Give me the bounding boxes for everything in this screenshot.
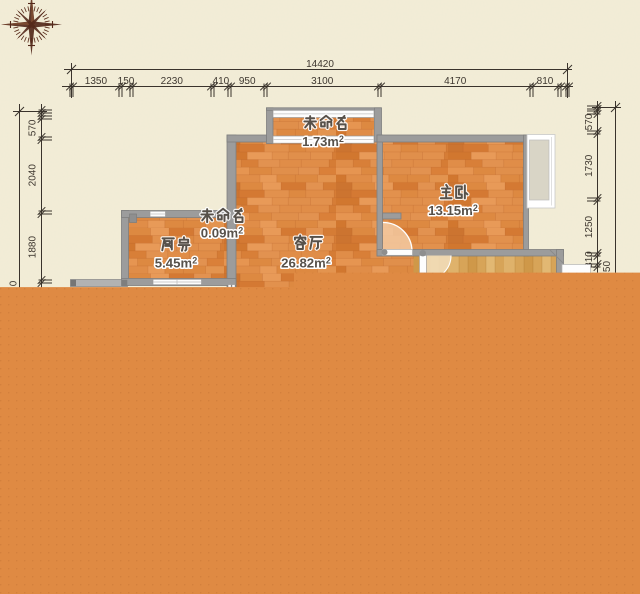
- svg-text:13.15m2: 13.15m2: [428, 203, 478, 218]
- svg-text:150: 150: [118, 76, 135, 87]
- svg-text:5.45m2: 5.45m2: [155, 255, 197, 270]
- svg-text:4170: 4170: [444, 76, 467, 87]
- svg-text:570: 570: [584, 113, 595, 130]
- svg-text:810: 810: [537, 76, 554, 87]
- svg-text:1880: 1880: [28, 236, 39, 259]
- svg-text:50: 50: [602, 261, 613, 273]
- svg-text:1730: 1730: [584, 154, 595, 177]
- svg-text:26.82m2: 26.82m2: [281, 255, 331, 270]
- svg-text:950: 950: [239, 76, 256, 87]
- svg-text:1.73m2: 1.73m2: [302, 134, 344, 149]
- svg-text:0: 0: [9, 280, 20, 286]
- svg-text:1350: 1350: [85, 76, 108, 87]
- svg-text:2040: 2040: [28, 164, 39, 187]
- svg-text:0.09m2: 0.09m2: [201, 225, 243, 240]
- svg-text:3100: 3100: [311, 76, 334, 87]
- svg-text:410: 410: [213, 76, 230, 87]
- svg-text:570: 570: [28, 119, 39, 136]
- svg-text:2230: 2230: [161, 76, 184, 87]
- svg-text:14420: 14420: [306, 59, 334, 70]
- svg-text:1250: 1250: [584, 215, 595, 238]
